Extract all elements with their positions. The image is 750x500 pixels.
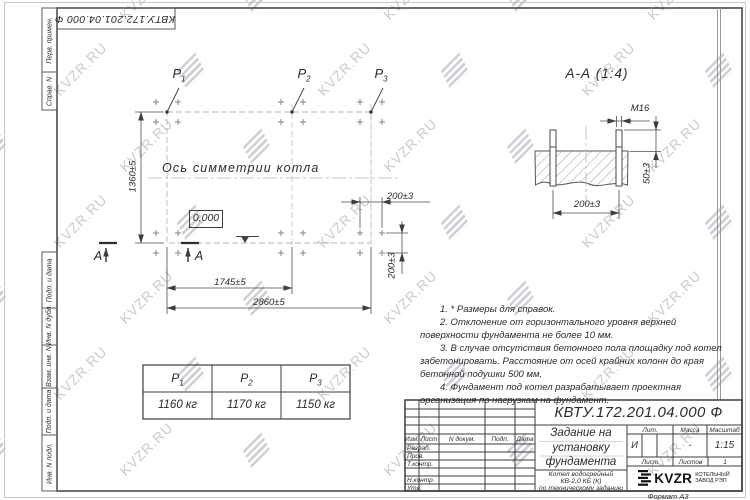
dim-200-vertical: 200±3: [387, 236, 398, 296]
load-table-value-p2: 1170 кг: [212, 392, 281, 419]
doc-title-line-1: Задание на: [537, 427, 625, 440]
tb-sheets-label: Листов: [673, 458, 708, 467]
note-1: 1. * Размеры для справок.: [420, 303, 722, 316]
title-block-designation: КВТУ.172.201.04.000 Ф: [537, 401, 740, 425]
load-table-value-p3: 1150 кг: [281, 392, 350, 419]
margin-label-inv-podl: Инв. N подл.: [42, 435, 57, 491]
section-linework: [535, 126, 628, 204]
product-line-3: по техническому заданию: [537, 486, 625, 493]
section-title: А-А (1:4): [552, 66, 642, 81]
tb-col-ndokum: N докум.: [439, 435, 485, 444]
section-letter-right: А: [192, 249, 206, 263]
tb-sheets-value: 1: [708, 458, 742, 467]
doc-title-line-2: установку: [537, 442, 625, 455]
dim-1745: 1745±5: [200, 277, 260, 288]
tb-lit-value: И: [627, 434, 642, 457]
dim-2860: 2860±5: [239, 297, 299, 308]
tb-col-podp: Подп.: [485, 435, 515, 444]
tb-col-data: Дата: [515, 435, 535, 444]
point-label-p3: P3: [366, 66, 396, 84]
point-label-p2: P2: [289, 66, 319, 84]
dim-200-horizontal: 200±3: [379, 191, 421, 202]
tb-scale-value: 1:15: [707, 434, 742, 457]
tb-col-izm: Изм.: [405, 435, 419, 444]
margin-label-vzam-inv: Взам. инв. N: [42, 345, 57, 388]
tb-row-tkontr: Т.контр.: [407, 461, 439, 469]
margin-label-podp-data-2: Подп. и дата: [42, 388, 57, 435]
logo-subtitle-line2: ЗАВОД РЭП: [695, 478, 726, 484]
bolt-thread-label: М16: [622, 103, 658, 114]
company-logo: KVZR КОТЕЛЬНЫЙ ЗАВОД РЭП: [628, 467, 740, 489]
logo-subtitle: КОТЕЛЬНЫЙ ЗАВОД РЭП: [695, 472, 729, 484]
tb-mass-value: -: [673, 434, 707, 457]
dim-1360: 1360±5: [128, 147, 139, 207]
tb-row-prov: Пров.: [407, 453, 439, 461]
kvzr-logo-icon: [638, 470, 651, 486]
corner-designation: КВТУ.172.201.04.000 Ф: [57, 8, 175, 29]
margin-label-sprav-n: Справ. N: [42, 72, 57, 110]
notes: 1. * Размеры для справок. 2. Отклонение …: [420, 303, 722, 407]
margin-label-perv-primen: Перв. примен.: [42, 8, 57, 72]
level-mark: 0,000: [189, 210, 223, 228]
tb-col-list: Лист: [419, 435, 439, 444]
dim-50: 50±3: [642, 144, 653, 204]
tb-row-razrab: Разраб.: [407, 445, 439, 453]
note-3: 3. В случае отсутствия бетонного пола пл…: [420, 342, 722, 381]
doc-title-line-3: фундамента: [537, 456, 625, 469]
drawing-sheet: KVZR.RUKVZR.RUKVZR.RUKVZR.RUKVZR.RUKVZR.…: [0, 0, 750, 500]
dim-200-section: 200±3: [556, 199, 618, 210]
tb-row-utv: Утв.: [407, 485, 439, 493]
format-label: Формат А3: [628, 492, 708, 500]
tb-row-nkontr: Н.контр.: [407, 477, 439, 485]
section-letter-left: А: [91, 249, 105, 263]
note-2: 2. Отклонение от горизонтального уровня …: [420, 316, 722, 342]
logo-text: KVZR: [654, 471, 692, 486]
margin-label-inv-dubl: Инв. N дубл.: [42, 308, 57, 345]
margin-label-podp-data-1: Подп. и дата: [42, 252, 57, 308]
point-label-p1: P1: [164, 66, 194, 84]
load-table-value-p1: 1160 кг: [143, 392, 212, 419]
plan-linework: [99, 88, 398, 262]
boiler-axis-label: Ось симметрии котла: [162, 161, 320, 175]
tb-sheet-label: Лист: [627, 458, 673, 467]
